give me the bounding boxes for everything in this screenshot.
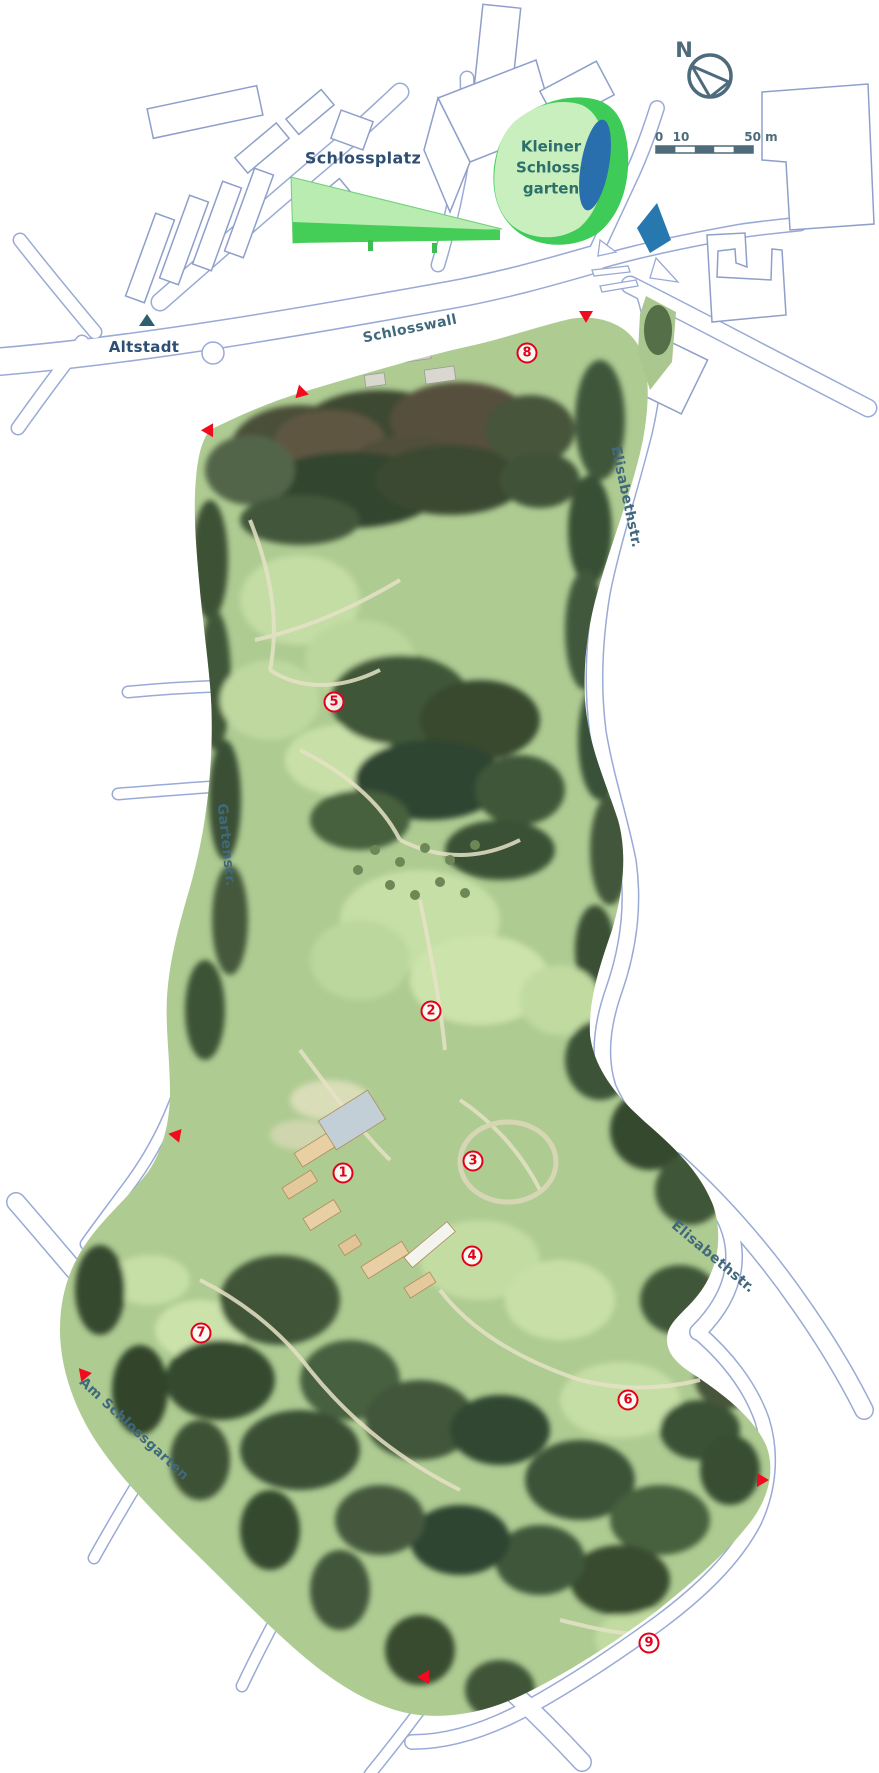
poi-marker-1[interactable]: 1 bbox=[333, 1163, 354, 1184]
scale-bar bbox=[656, 146, 753, 153]
roundabout bbox=[202, 342, 224, 364]
poi-marker-3[interactable]: 3 bbox=[463, 1151, 484, 1172]
schlossplatz-label: Schlossplatz bbox=[305, 149, 421, 168]
kleiner-line1: Kleiner bbox=[516, 137, 586, 158]
kleiner-line3: garten bbox=[516, 179, 586, 200]
base-map bbox=[0, 0, 879, 1773]
poi-marker-8[interactable]: 8 bbox=[517, 343, 538, 364]
schlossplatz-green bbox=[291, 177, 502, 253]
entrance-marker-icon bbox=[579, 311, 593, 323]
entrance-marker-icon bbox=[417, 1670, 429, 1684]
scale-start-label: 0 bbox=[655, 130, 663, 144]
kleiner-schlossgarten-label: Kleiner Schloss- garten bbox=[516, 137, 586, 200]
poi-marker-4[interactable]: 4 bbox=[462, 1246, 483, 1267]
entrance-marker-icon bbox=[79, 1366, 93, 1382]
kleiner-line2: Schloss- bbox=[516, 158, 586, 179]
poi-marker-7[interactable]: 7 bbox=[191, 1323, 212, 1344]
north-label: N bbox=[675, 38, 693, 62]
poi-marker-9[interactable]: 9 bbox=[639, 1633, 660, 1654]
compass-rose bbox=[689, 55, 731, 97]
poi-marker-2[interactable]: 2 bbox=[421, 1001, 442, 1022]
poi-marker-5[interactable]: 5 bbox=[324, 692, 345, 713]
scale-end-label: 50 m bbox=[744, 130, 777, 144]
poi-marker-6[interactable]: 6 bbox=[618, 1390, 639, 1411]
altstadt-triangle-icon bbox=[139, 314, 155, 326]
entrance-marker-icon bbox=[757, 1473, 769, 1487]
map-stage: Schlossplatz Altstadt Kleiner Schloss- g… bbox=[0, 0, 879, 1773]
park-aerial bbox=[60, 296, 770, 1720]
altstadt-label: Altstadt bbox=[109, 338, 179, 356]
scale-mid-label: 10 bbox=[673, 130, 690, 144]
